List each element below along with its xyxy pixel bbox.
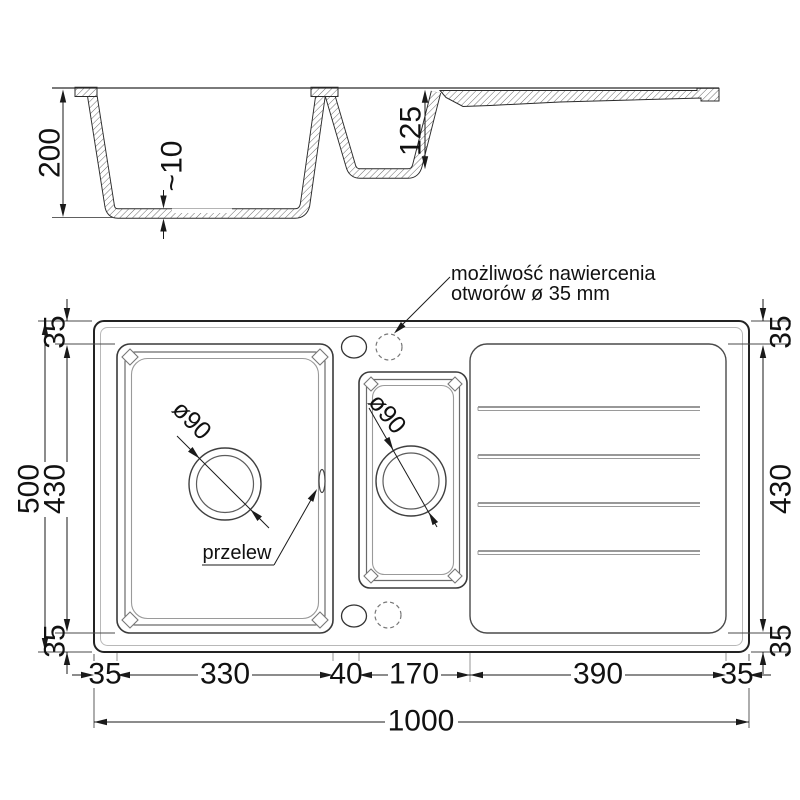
overflow-slot: [319, 470, 325, 493]
dim-10-label: ~10: [156, 141, 189, 192]
faucet-hole-top: [342, 336, 367, 358]
note-line1: możliwość nawiercenia: [451, 263, 656, 285]
dim-right-35-bottom: 35: [765, 624, 798, 657]
dim-left-430: 430: [39, 464, 72, 514]
overflow-label: przelew: [203, 542, 272, 564]
dim-right-430: 430: [765, 464, 798, 514]
note-line2: otworów ø 35 mm: [451, 283, 610, 305]
dim-200-label: 200: [34, 128, 67, 178]
sink-outline: [94, 321, 749, 652]
dim-bottom-35-left: 35: [88, 658, 121, 691]
dim-bottom-40: 40: [329, 658, 362, 691]
dim-bottom-390: 390: [573, 658, 623, 691]
dim-125-label: 125: [395, 106, 428, 156]
dim-bottom-1000: 1000: [388, 705, 455, 738]
section-mid-rim: [311, 87, 338, 96]
technical-drawing: 200 ~10 125: [0, 0, 800, 800]
dim-bottom-35-right: 35: [720, 658, 753, 691]
dim-bottom-170: 170: [389, 658, 439, 691]
dim-right-35-top: 35: [765, 315, 798, 348]
faucet-hole-bottom: [342, 605, 367, 627]
section-left-rim: [75, 87, 97, 96]
dim-left-35-bottom: 35: [39, 624, 72, 657]
dim-bottom-330: 330: [200, 658, 250, 691]
dim-left-35-top: 35: [39, 315, 72, 348]
